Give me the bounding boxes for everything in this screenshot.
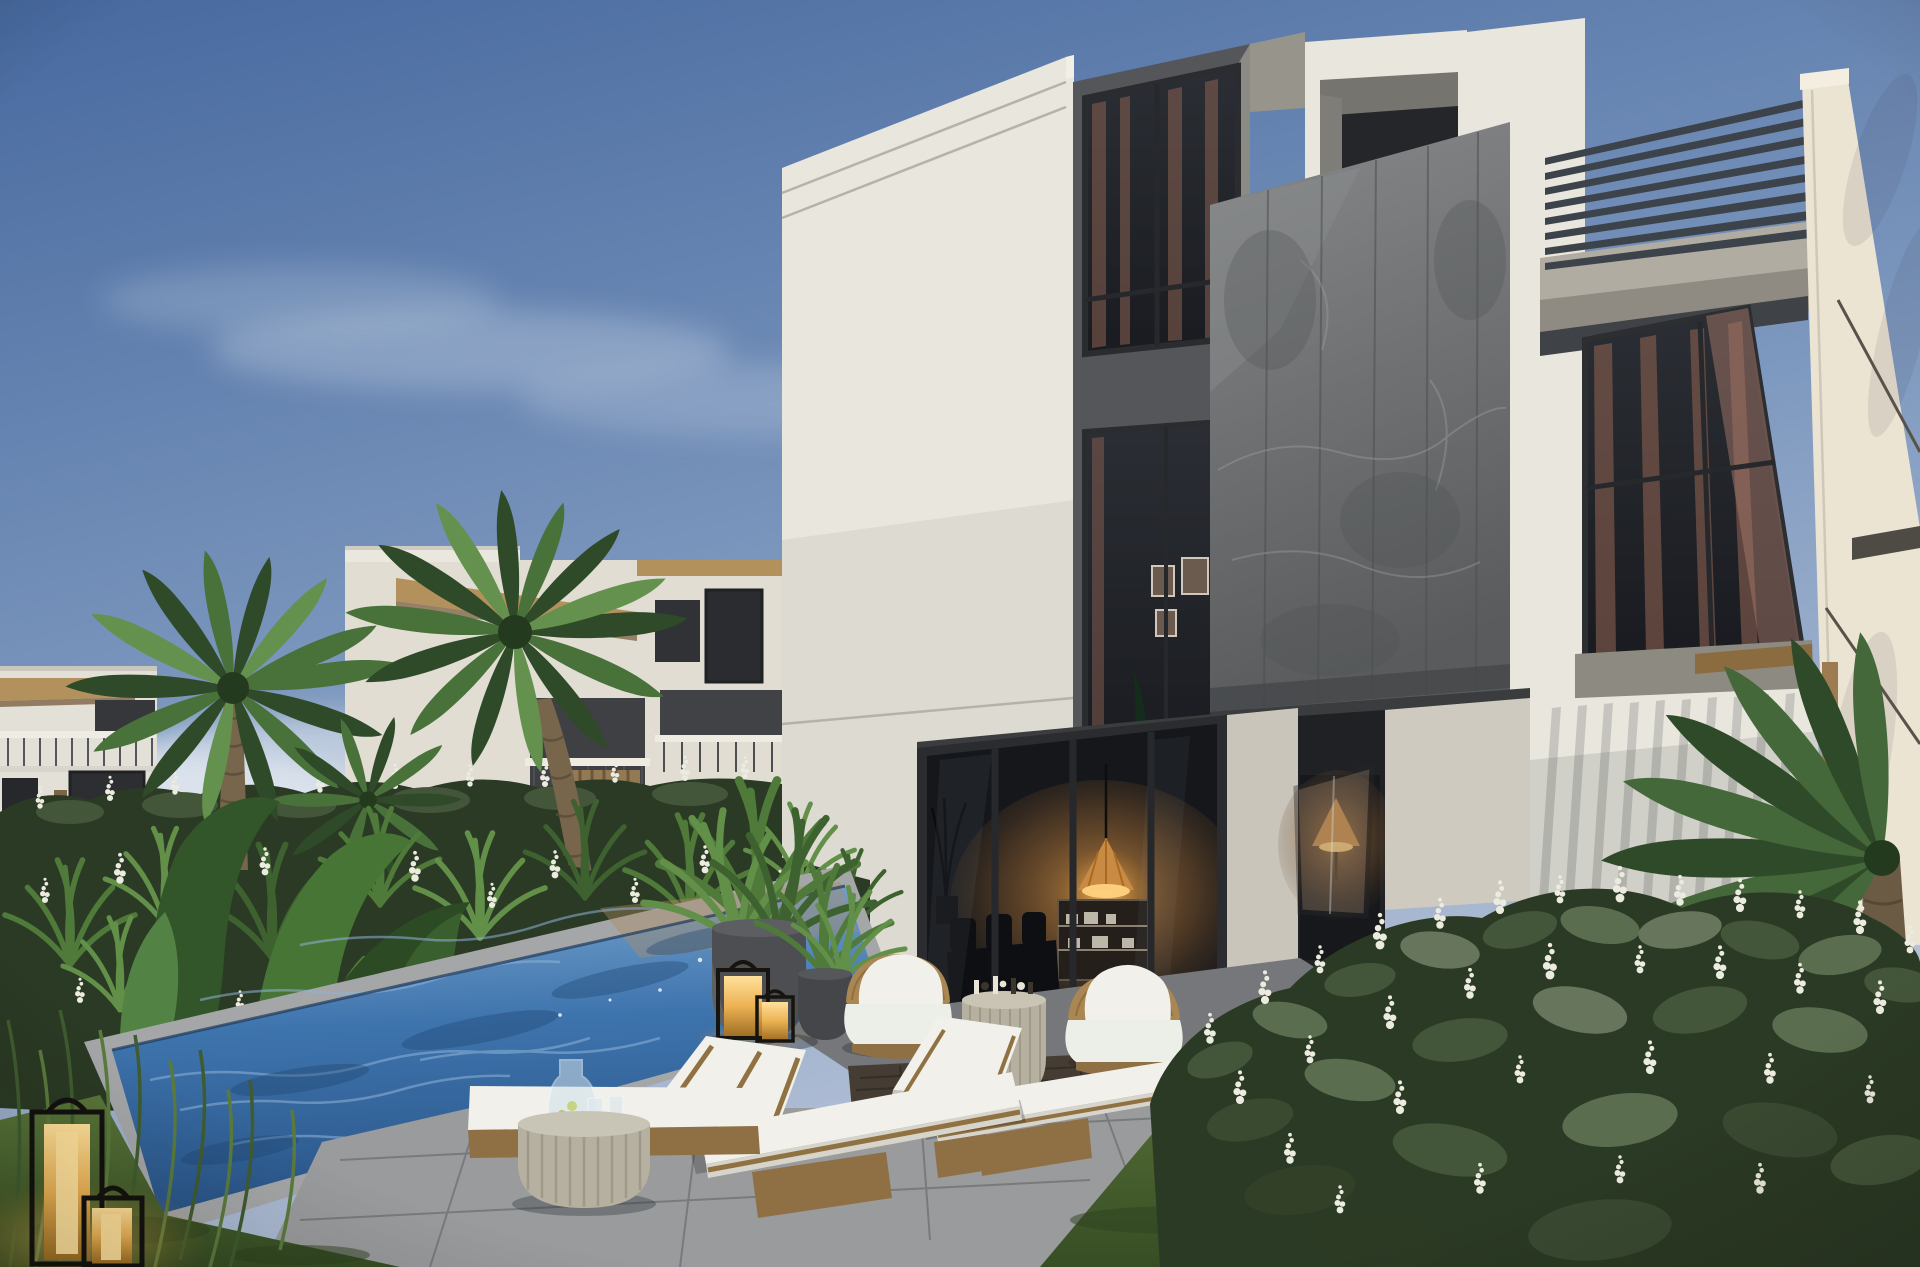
render-viewport: 3D architectural rendering: modern three… xyxy=(0,0,1920,1267)
architectural-render: 3D architectural rendering: modern three… xyxy=(0,0,1920,1267)
vignette xyxy=(0,0,1920,1267)
